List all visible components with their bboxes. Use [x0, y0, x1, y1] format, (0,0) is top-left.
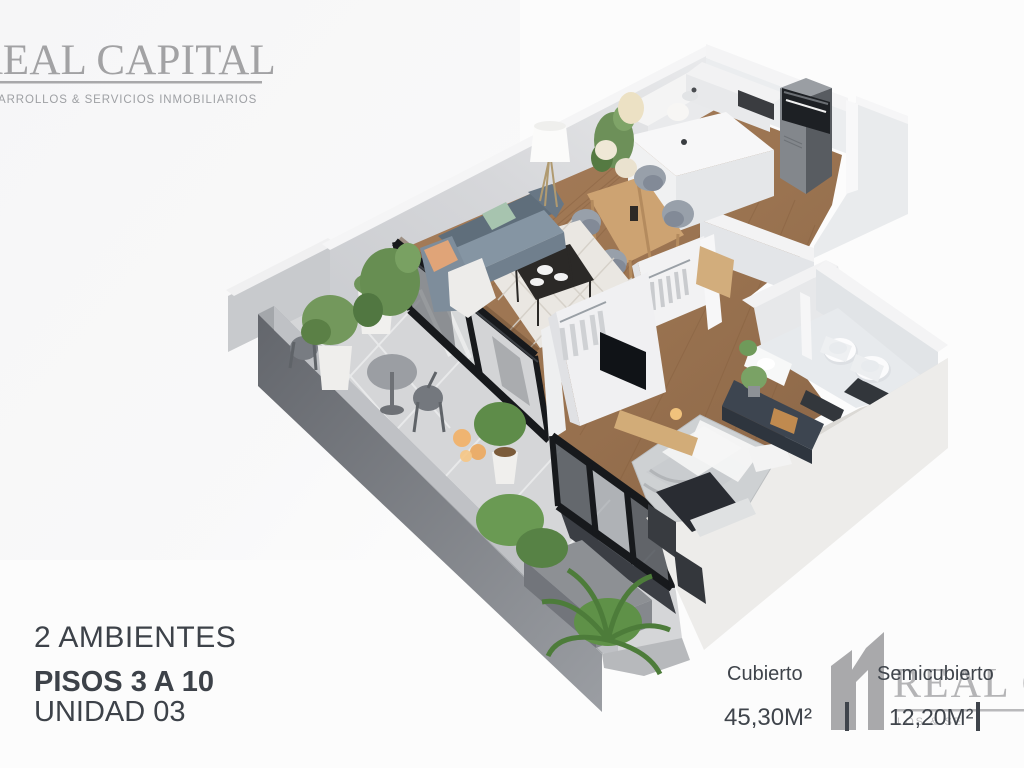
- svg-text:Semicubierto: Semicubierto: [877, 663, 994, 685]
- svg-text:REAL CAPITAL: REAL CAPITAL: [0, 37, 276, 84]
- svg-text:ARROLLOS & SERVICIOS INMOBI: ARROLLOS & SERVICIOS INMOBILIARIOS: [0, 94, 257, 106]
- svg-text:12,20M²: 12,20M²: [889, 704, 974, 730]
- svg-text:2 AMBIENTES: 2 AMBIENTES: [34, 621, 236, 654]
- svg-text:PISOS 3 A 10: PISOS 3 A 10: [34, 666, 214, 698]
- svg-text:45,30M²: 45,30M²: [724, 704, 812, 731]
- svg-text:Cubierto: Cubierto: [727, 663, 803, 685]
- svg-text:UNIDAD 03: UNIDAD 03: [34, 696, 186, 728]
